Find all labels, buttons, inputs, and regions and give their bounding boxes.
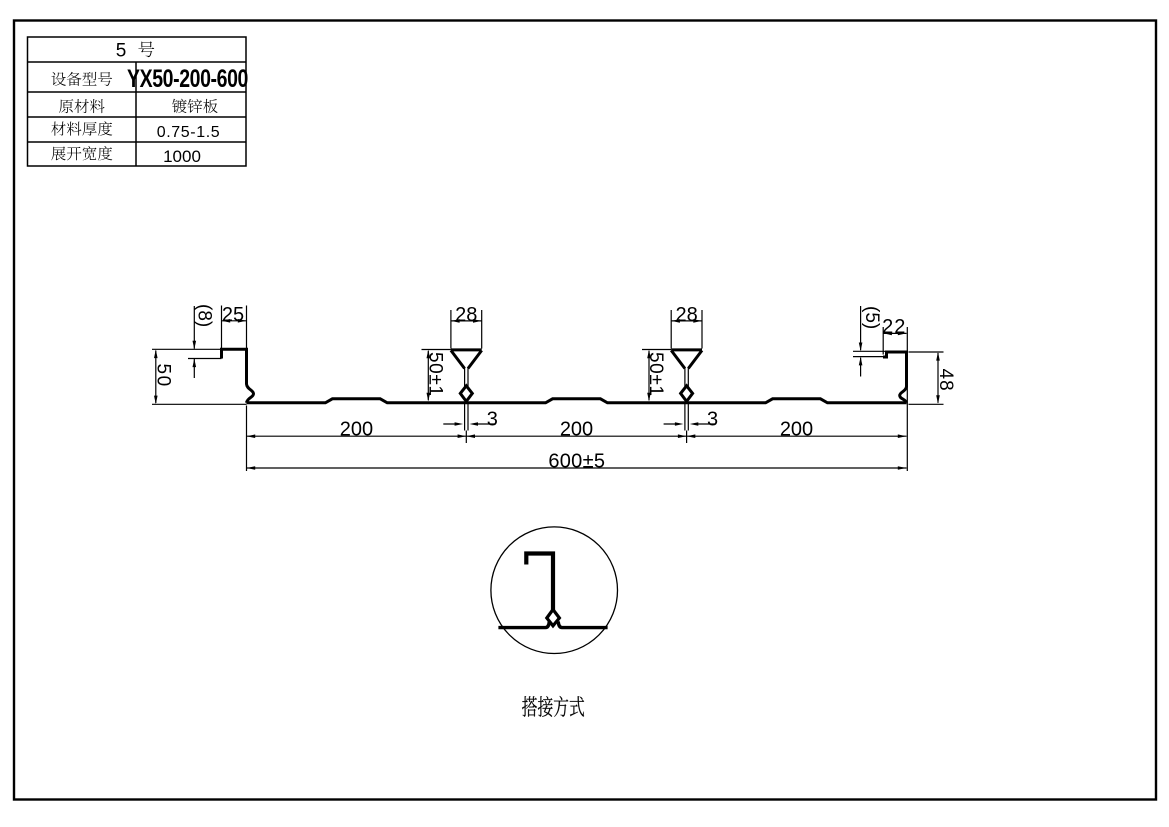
svg-text:(5): (5) [861,306,882,329]
svg-text:3: 3 [487,409,498,431]
svg-text:200: 200 [560,419,593,441]
svg-text:22: 22 [882,316,906,338]
svg-text:3: 3 [707,409,718,431]
svg-text:600±5: 600±5 [548,451,605,473]
svg-text:50: 50 [153,364,174,388]
svg-text:50±1: 50±1 [645,352,666,397]
svg-text:200: 200 [340,419,373,441]
svg-text:0.75-1.5: 0.75-1.5 [157,124,221,141]
svg-text:(8): (8) [194,304,215,327]
svg-text:200: 200 [780,419,813,441]
svg-text:25: 25 [222,304,244,326]
svg-text:28: 28 [675,304,697,326]
svg-text:28: 28 [455,304,477,326]
svg-text:48: 48 [935,369,956,392]
svg-text:50±1: 50±1 [425,352,446,397]
svg-text:1000: 1000 [163,147,201,166]
svg-text:YX50-200-600: YX50-200-600 [127,65,248,93]
svg-text:5: 5 [116,41,127,62]
